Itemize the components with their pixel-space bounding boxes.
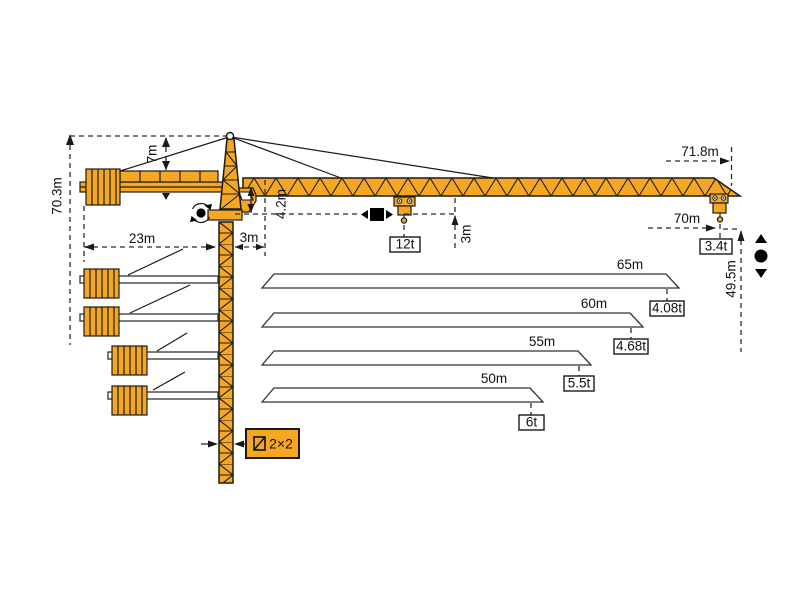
mast-section-label: 2×2 [269,436,293,452]
tower-mast [219,222,233,483]
dimension-hook-drop: 3m [452,198,474,250]
jib-variant-load: 4.08t [652,301,682,316]
jib-variant-length: 50m [481,371,507,386]
tip-load-value: 3.4t [705,239,728,254]
turntable [208,210,242,220]
trolley-hook-mid [394,197,415,237]
jib-clearance-label: 4.2m [274,189,289,219]
jib-variant-50m: 50m 6t [262,371,544,430]
dimension-tip-radius: 70m [648,211,716,232]
jib-variant-load: 4.68t [616,339,646,354]
total-height-label: 70.3m [50,177,65,215]
counterweight-stack [86,169,120,205]
jib-variant-load: 5.5t [568,376,591,391]
jib [243,178,740,196]
jib-variant-length: 55m [529,334,555,349]
jib-variant-load: 6t [526,415,538,430]
rear-offset-label: 3m [240,230,259,245]
dimension-counter-jib: 23m [84,206,216,262]
crane-load-diagram: 70.3m 7m [0,0,800,600]
counter-jib [80,169,238,205]
hook-drop-label: 3m [459,225,474,244]
trolley-hook-tip [710,194,741,239]
max-radius-label: 71.8m [681,144,719,159]
max-load-box: 12t [390,237,420,253]
hook-height-label: 49.5m [724,260,739,298]
jib-variant-65m: 65m 4.08t [262,257,684,316]
hoisting-icon [755,234,768,278]
tip-load-box: 3.4t [700,239,732,255]
counterweight-option-4 [108,372,218,415]
tower-head [220,133,241,210]
tip-radius-label: 70m [674,211,700,226]
jib-variant-60m: 60m 4.68t [262,296,648,354]
mast-size-tag: 2×2 [201,429,299,458]
hook-icon [401,218,406,223]
trolley-travel-icon [361,208,393,221]
counterweight-option-1 [80,249,218,298]
counterweight-option-3 [108,333,218,375]
tip-hook-icon [717,217,722,222]
jib-variant-55m: 55m 5.5t [262,334,594,391]
counter-jib-length-label: 23m [129,231,155,246]
jib-variant-length: 60m [581,296,607,311]
max-load-value: 12t [396,237,415,252]
apex-pin [227,133,234,140]
diagram-canvas: 70.3m 7m [0,0,800,600]
jib-variant-length: 65m [617,257,643,272]
